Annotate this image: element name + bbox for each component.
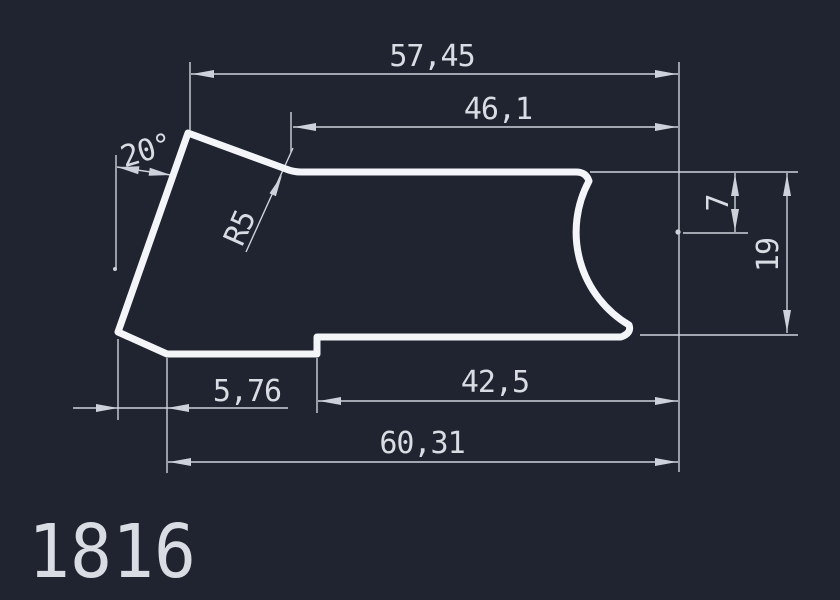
arrowhead	[294, 123, 316, 131]
arrowhead	[149, 168, 171, 176]
dim-label-left-angle: 20°	[117, 127, 176, 175]
arrowhead	[655, 458, 677, 466]
dim-label-top-edge-width: 46,1	[464, 92, 532, 127]
dim-label-bottom-left-offset: 5,76	[213, 374, 281, 409]
cad-drawing: 57,45 46,1 20° R5 7 19 5,76 42,5 60,31 1…	[0, 0, 840, 600]
arrowhead	[96, 404, 118, 412]
dim-label-bottom-width: 60,31	[379, 426, 464, 461]
arrowhead	[655, 397, 677, 405]
arrowhead	[655, 123, 677, 131]
dim-label-fillet-radius: R5	[217, 205, 263, 250]
cad-drawing-canvas: 57,45 46,1 20° R5 7 19 5,76 42,5 60,31 1…	[0, 0, 840, 600]
arrowhead	[731, 174, 739, 196]
arrowhead	[783, 310, 791, 332]
dim-label-top-width: 57,45	[389, 39, 474, 74]
arc-center-mark	[675, 229, 680, 234]
dim-label-arc-center-depth: 7	[701, 194, 736, 211]
arrowhead	[192, 70, 214, 78]
arrowhead	[655, 70, 677, 78]
dim-label-right-height: 19	[751, 238, 786, 272]
part-outline	[118, 133, 630, 354]
arrowhead	[169, 458, 191, 466]
dim-label-bottom-edge-width: 42,5	[461, 365, 529, 400]
arrowhead	[319, 397, 341, 405]
dimension-geometry	[73, 62, 798, 473]
arrowhead	[270, 175, 283, 196]
arrowhead	[167, 404, 189, 412]
line-end-mark	[113, 267, 117, 271]
arrowhead	[783, 174, 791, 196]
part-number-label: 1816	[28, 509, 196, 595]
